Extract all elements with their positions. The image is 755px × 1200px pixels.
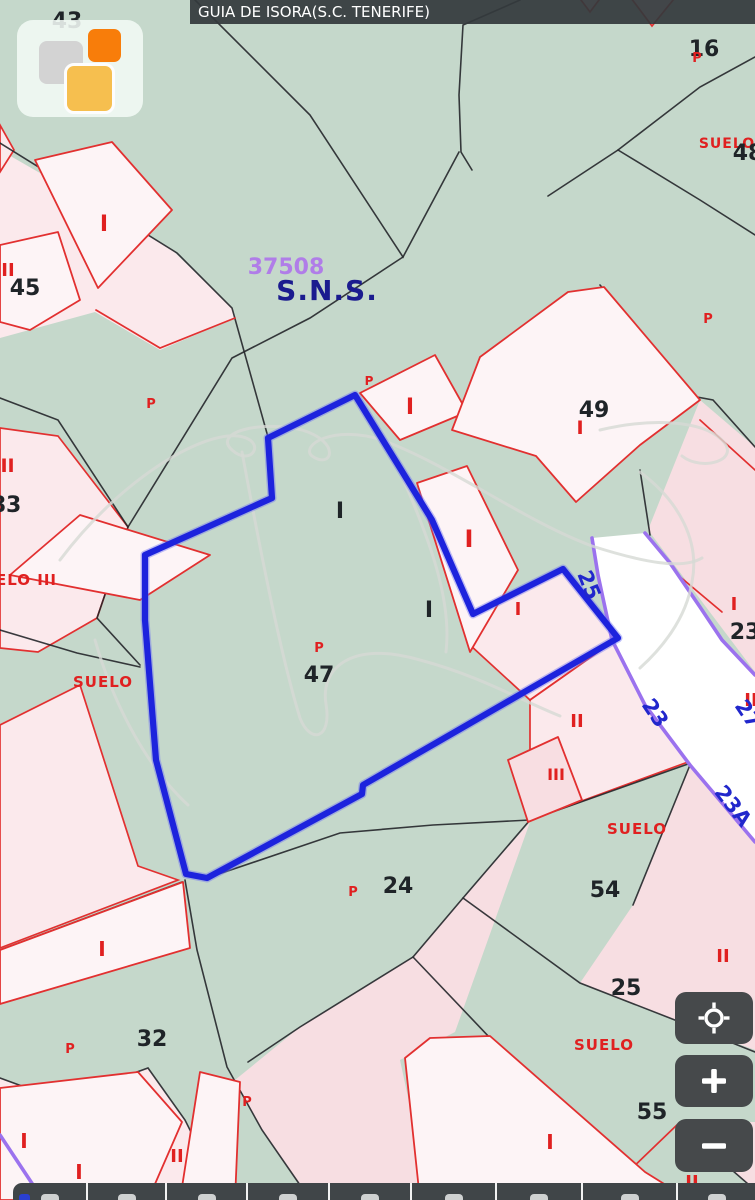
pending-flag: P (365, 374, 374, 388)
parcel-number: 55 (637, 1100, 668, 1125)
roman-numeral: I (20, 1129, 27, 1153)
suelo-label: SUELO (73, 673, 133, 691)
municipality-title-bar: GUIA DE ISORA(S.C. TENERIFE) (190, 0, 755, 24)
bottom-toolbar (13, 1183, 755, 1200)
suelo-label: SUELO (607, 820, 667, 838)
roman-numeral: I (465, 525, 474, 553)
sns-label: S.N.S. (276, 274, 378, 307)
crosshair-target-icon (697, 1001, 731, 1035)
roman-numeral: I (100, 212, 108, 237)
zoom-in-button[interactable] (675, 1055, 753, 1107)
suelo-label: SUELO III (0, 571, 57, 589)
plus-icon (699, 1066, 729, 1096)
toolbar-icon-fragment (445, 1194, 463, 1200)
toolbar-button-9[interactable] (678, 1183, 755, 1200)
roman-numeral: III (547, 765, 565, 784)
roman-numeral: I (98, 937, 105, 961)
parcel-number: 32 (137, 1027, 168, 1052)
toolbar-icon-fragment (530, 1194, 548, 1200)
catastro-app-logo (17, 20, 143, 117)
toolbar-icon-fragment (708, 1194, 726, 1200)
toolbar-button-6[interactable] (412, 1183, 497, 1200)
toolbar-icon-fragment (118, 1194, 136, 1200)
parcel-number: 25 (611, 976, 642, 1001)
pending-flag: P (348, 885, 358, 900)
pending-flag: P (692, 51, 702, 66)
roman-numeral: I (75, 1160, 82, 1184)
pending-flag: P (703, 312, 713, 327)
toolbar-button-5[interactable] (330, 1183, 412, 1200)
toolbar-icon-fragment (361, 1194, 379, 1200)
toolbar-button-7[interactable] (497, 1183, 583, 1200)
roman-numeral: I (336, 499, 344, 524)
toolbar-button-1[interactable] (13, 1183, 88, 1200)
roman-numeral: I (731, 594, 738, 615)
pending-flag: P (314, 641, 324, 656)
toolbar-icon-fragment (621, 1194, 639, 1200)
cadastral-map-viewer: 43 16 P SUELO 48 II 45 I P 37508 S.N.S. … (0, 0, 755, 1200)
pending-flag: P (65, 1042, 75, 1057)
zoom-out-button[interactable] (675, 1119, 753, 1172)
toolbar-icon-fragment (279, 1194, 297, 1200)
minus-icon (699, 1131, 729, 1161)
pending-flag: P (146, 397, 156, 412)
parcel-number: 54 (590, 878, 621, 903)
roman-numeral: I (576, 417, 583, 439)
parcel-number: 45 (10, 276, 41, 301)
toolbar-button-8[interactable] (583, 1183, 678, 1200)
toolbar-icon-fragment (41, 1194, 59, 1200)
toolbar-button-2[interactable] (88, 1183, 167, 1200)
toolbar-icon-fragment (198, 1194, 216, 1200)
toolbar-button-4[interactable] (248, 1183, 330, 1200)
roman-numeral: II (170, 1146, 183, 1167)
logo-amber-square (64, 63, 115, 114)
parcel-number: 83 (0, 493, 21, 518)
municipality-title: GUIA DE ISORA(S.C. TENERIFE) (198, 3, 430, 21)
parcel-number: 24 (383, 874, 414, 899)
toolbar-button-3[interactable] (167, 1183, 248, 1200)
logo-orange-square (88, 29, 121, 62)
pending-flag: P (242, 1095, 252, 1110)
roman-numeral: III (0, 455, 15, 477)
roman-numeral: I (515, 599, 522, 620)
roman-numeral: I (425, 598, 433, 623)
suelo-label: SUELO (574, 1036, 634, 1054)
roman-numeral: I (406, 395, 414, 420)
toolbar-icon-fragment (19, 1194, 30, 1200)
map-canvas[interactable]: 43 16 P SUELO 48 II 45 I P 37508 S.N.S. … (0, 0, 755, 1200)
roman-numeral: I (546, 1130, 553, 1154)
roman-numeral: II (570, 711, 583, 732)
parcel-number: 48 (733, 141, 755, 166)
locate-me-button[interactable] (675, 992, 753, 1044)
roman-numeral: II (716, 946, 729, 967)
parcel-number: 47 (304, 663, 335, 688)
parcel-number: 23 (730, 620, 755, 645)
